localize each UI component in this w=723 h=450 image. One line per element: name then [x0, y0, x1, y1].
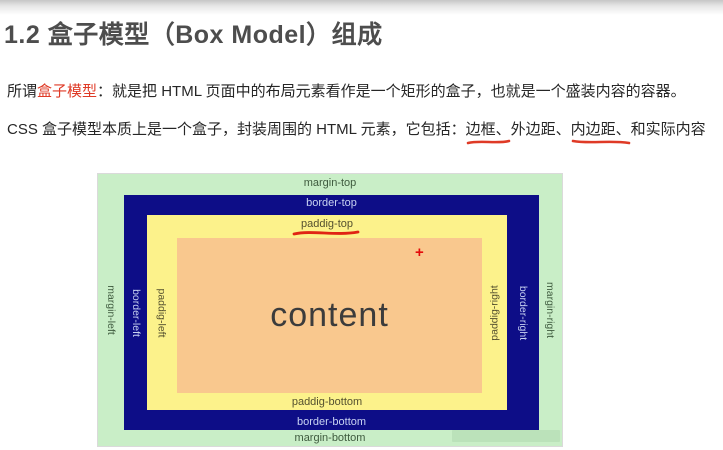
hand-underline-icon [571, 138, 631, 146]
hand-underline-icon [466, 138, 511, 146]
padding-left-band: paddig-left [147, 215, 177, 410]
label-content: content [270, 296, 389, 335]
label-margin-top: margin-top [98, 177, 562, 189]
label-border-top: border-top [124, 197, 539, 209]
para2-underlined-padding-term: 内边距、 [571, 118, 631, 139]
paragraph-box-model-parts: CSS 盒子模型本质上是一个盒子，封装周围的 HTML 元素，它包括：边框、外边… [7, 118, 706, 139]
faded-watermark [452, 430, 560, 442]
label-border-bottom: border-bottom [124, 416, 539, 428]
para1-prefix: 所谓 [7, 83, 37, 100]
label-padding-bottom: paddig-bottom [147, 396, 507, 408]
page-top-gradient [0, 0, 723, 15]
padding-area: paddig-top paddig-bottom paddig-left pad… [147, 215, 507, 410]
para2-underlined-border-term: 边框、 [466, 118, 511, 139]
hand-underline-icon [292, 229, 360, 237]
border-area: border-top border-bottom border-left bor… [124, 195, 539, 430]
border-left-band: border-left [124, 195, 147, 430]
content-area: content + [177, 238, 482, 393]
plus-annotation: + [415, 244, 424, 261]
padding-right-band: paddig-right [482, 215, 507, 410]
para2-suffix: 和实际内容 [631, 121, 706, 138]
label-padding-left: paddig-left [156, 288, 168, 337]
para1-rest: ：就是把 HTML 页面中的布局元素看作是一个矩形的盒子，也就是一个盛装内容的容… [97, 83, 686, 100]
label-margin-right: margin-right [545, 282, 557, 338]
label-padding-right: paddig-right [489, 285, 501, 340]
label-margin-left: margin-left [105, 285, 117, 335]
margin-left-band: margin-left [98, 174, 124, 446]
border-term-text: 边框、 [466, 121, 511, 138]
border-right-band: border-right [507, 195, 539, 430]
para2-middle: 外边距、 [511, 121, 571, 138]
page-title: 1.2 盒子模型（Box Model）组成 [4, 15, 704, 51]
margin-right-band: margin-right [539, 174, 562, 446]
box-model-diagram: margin-top margin-bottom margin-left mar… [97, 173, 563, 447]
label-border-left: border-left [130, 289, 142, 337]
para1-highlight-term: 盒子模型 [37, 83, 97, 100]
para2-prefix: CSS 盒子模型本质上是一个盒子，封装周围的 HTML 元素，它包括： [7, 121, 466, 138]
paragraph-box-model-definition: 所谓盒子模型：就是把 HTML 页面中的布局元素看作是一个矩形的盒子，也就是一个… [7, 80, 686, 101]
padding-term-text: 内边距、 [571, 121, 631, 138]
label-border-right: border-right [517, 285, 529, 339]
